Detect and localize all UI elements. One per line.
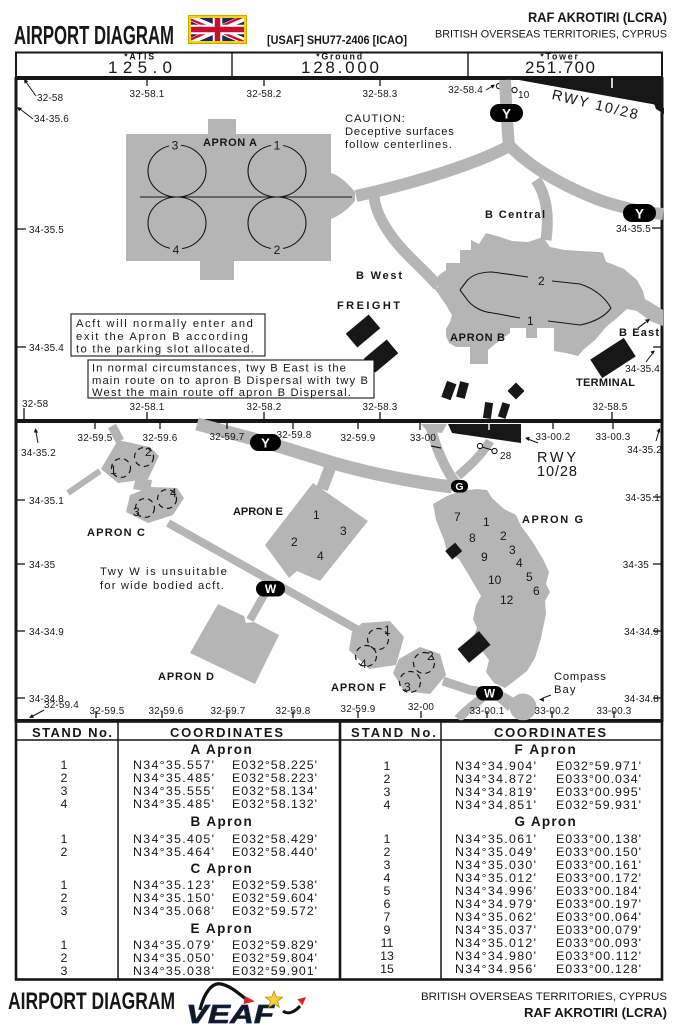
svg-text:N34°35.464': N34°35.464' — [133, 845, 214, 859]
svg-text:TERMINAL: TERMINAL — [576, 377, 635, 389]
svg-text:6: 6 — [384, 897, 391, 911]
svg-text:Y: Y — [635, 207, 644, 222]
svg-text:STAND No.: STAND No. — [32, 725, 112, 740]
svg-text:32-58.4: 32-58.4 — [448, 85, 483, 96]
svg-text:3: 3 — [61, 904, 68, 918]
svg-text:1: 1 — [110, 463, 117, 477]
svg-text:1: 1 — [483, 515, 490, 529]
svg-text:E032°59.931': E032°59.931' — [556, 798, 641, 812]
svg-text:32-00: 32-00 — [408, 702, 435, 713]
svg-text:34-35.1: 34-35.1 — [625, 493, 660, 504]
svg-text:2: 2 — [61, 891, 68, 905]
svg-text:4: 4 — [516, 556, 523, 570]
svg-text:RAF AKROTIRI (LCRA): RAF AKROTIRI (LCRA) — [528, 10, 667, 25]
svg-text:G: G — [455, 481, 463, 493]
svg-text:N34°34.904': N34°34.904' — [455, 759, 536, 773]
svg-text:N34°35.068': N34°35.068' — [133, 904, 214, 918]
svg-text:N34°35.030': N34°35.030' — [455, 858, 536, 872]
svg-text:32-59.8: 32-59.8 — [276, 706, 311, 717]
svg-text:E032°58.225': E032°58.225' — [232, 758, 317, 772]
svg-text:1: 1 — [61, 878, 68, 892]
svg-text:E032°59.829': E032°59.829' — [232, 938, 317, 952]
svg-text:33-00.2: 33-00.2 — [536, 432, 571, 443]
svg-text:N34°35.405': N34°35.405' — [133, 832, 214, 846]
svg-text:3: 3 — [509, 543, 516, 557]
svg-text:Bay: Bay — [554, 684, 577, 696]
svg-text:E Apron: E Apron — [191, 921, 254, 936]
svg-text:[USAF] SHU77-2406 [ICAO]: [USAF] SHU77-2406 [ICAO] — [267, 35, 407, 47]
svg-text:N34°35.123': N34°35.123' — [133, 878, 214, 892]
svg-text:N34°35.557': N34°35.557' — [133, 758, 214, 772]
svg-text:main route on to apron B Dispe: main route on to apron B Dispersal with … — [92, 375, 369, 387]
svg-text:N34°34.980': N34°34.980' — [455, 949, 536, 963]
svg-text:34-34.9: 34-34.9 — [29, 627, 64, 638]
svg-text:E032°58.132': E032°58.132' — [232, 797, 317, 811]
svg-text:4: 4 — [384, 798, 391, 812]
svg-text:APRON C: APRON C — [87, 527, 145, 539]
svg-text:STAND No.: STAND No. — [351, 725, 436, 740]
svg-text:8: 8 — [469, 531, 476, 545]
svg-text:N34°35.012': N34°35.012' — [455, 871, 536, 885]
svg-text:N34°35.150': N34°35.150' — [133, 891, 214, 905]
svg-text:34-35.1: 34-35.1 — [29, 496, 64, 507]
svg-text:33-00.1: 33-00.1 — [470, 706, 505, 717]
svg-text:APRON G: APRON G — [522, 514, 583, 526]
svg-text:W: W — [265, 582, 277, 596]
svg-text:3: 3 — [384, 858, 391, 872]
svg-text:1: 1 — [384, 832, 391, 846]
svg-text:2: 2 — [274, 243, 281, 257]
svg-text:E032°59.804': E032°59.804' — [232, 951, 317, 965]
svg-text:2: 2 — [384, 772, 391, 786]
svg-text:10: 10 — [488, 573, 502, 587]
svg-text:32-59.7: 32-59.7 — [211, 706, 246, 717]
svg-text:1: 1 — [61, 758, 68, 772]
svg-text:AIRPORT DIAGRAM: AIRPORT DIAGRAM — [14, 20, 174, 50]
svg-text:7: 7 — [384, 910, 391, 924]
svg-text:A Apron: A Apron — [191, 742, 254, 757]
svg-text:4: 4 — [173, 243, 180, 257]
svg-text:N34°35.555': N34°35.555' — [133, 784, 214, 798]
svg-text:CAUTION:: CAUTION: — [345, 113, 406, 125]
svg-text:34-35: 34-35 — [623, 560, 650, 571]
svg-text:G Apron: G Apron — [515, 814, 578, 829]
svg-text:32-59.8: 32-59.8 — [277, 430, 312, 441]
svg-text:BRITISH OVERSEAS TERRITORIES,: BRITISH OVERSEAS TERRITORIES, CYPRUS — [421, 991, 667, 1003]
svg-text:C Apron: C Apron — [191, 861, 254, 876]
svg-text:E032°59.901': E032°59.901' — [232, 964, 317, 978]
svg-text:10/28: 10/28 — [537, 464, 577, 480]
svg-text:E033°00.184': E033°00.184' — [556, 884, 641, 898]
svg-text:COORDINATES: COORDINATES — [170, 725, 283, 740]
svg-text:B West: B West — [356, 270, 402, 282]
svg-text:2: 2 — [61, 951, 68, 965]
svg-text:E033°00.079': E033°00.079' — [556, 923, 641, 937]
svg-text:W: W — [484, 689, 495, 701]
svg-text:B Apron: B Apron — [191, 814, 254, 829]
svg-text:32-58.3: 32-58.3 — [363, 402, 398, 413]
svg-text:BRITISH OVERSEAS TERRITORIES,: BRITISH OVERSEAS TERRITORIES, CYPRUS — [435, 29, 667, 41]
svg-text:F Apron: F Apron — [515, 742, 578, 757]
svg-text:34-35.4: 34-35.4 — [29, 343, 64, 354]
svg-text:33-00.3: 33-00.3 — [597, 706, 632, 717]
svg-text:APRON F: APRON F — [331, 682, 386, 694]
svg-text:1: 1 — [527, 314, 534, 328]
svg-text:33-00.3: 33-00.3 — [596, 432, 631, 443]
svg-text:Y: Y — [261, 436, 270, 451]
svg-text:34-35.2: 34-35.2 — [627, 445, 662, 456]
svg-text:32-59.9: 32-59.9 — [341, 704, 376, 715]
svg-text:4: 4 — [170, 486, 177, 500]
svg-text:Deceptive surfaces: Deceptive surfaces — [345, 126, 455, 138]
svg-text:7: 7 — [454, 510, 461, 524]
svg-text:N34°35.050': N34°35.050' — [133, 951, 214, 965]
svg-text:3: 3 — [61, 964, 68, 978]
svg-text:4: 4 — [360, 657, 367, 671]
svg-text:to the parking slot allocated.: to the parking slot allocated. — [76, 344, 255, 356]
svg-text:E033°00.138': E033°00.138' — [556, 832, 641, 846]
svg-text:3: 3 — [133, 505, 140, 519]
svg-text:2: 2 — [538, 274, 545, 288]
svg-text:AIRPORT DIAGRAM: AIRPORT DIAGRAM — [8, 988, 175, 1015]
svg-text:13: 13 — [380, 949, 394, 963]
svg-text:10: 10 — [518, 90, 530, 101]
svg-text:33-00: 33-00 — [410, 433, 437, 444]
svg-text:B Central: B Central — [485, 209, 545, 221]
svg-text:Acft will normally enter and: Acft will normally enter and — [76, 318, 254, 330]
svg-text:1: 1 — [384, 623, 391, 637]
svg-text:33-00.2: 33-00.2 — [535, 706, 570, 717]
svg-text:34-35.5: 34-35.5 — [616, 224, 651, 235]
svg-text:4: 4 — [61, 797, 68, 811]
svg-text:32-59.4: 32-59.4 — [44, 700, 79, 711]
svg-text:32-59.6: 32-59.6 — [149, 706, 184, 717]
svg-text:E033°00.150': E033°00.150' — [556, 845, 641, 859]
svg-text:32-59.6: 32-59.6 — [143, 433, 178, 444]
svg-text:follow centerlines.: follow centerlines. — [345, 139, 453, 151]
svg-text:2: 2 — [291, 535, 298, 549]
svg-text:32-58: 32-58 — [37, 93, 64, 104]
svg-text:2: 2 — [500, 529, 507, 543]
svg-text:E033°00.197': E033°00.197' — [556, 897, 641, 911]
svg-text:Y: Y — [502, 107, 511, 122]
svg-text:West the main route off apron: West the main route off apron B Dispersa… — [92, 387, 352, 399]
svg-text:N34°34.956': N34°34.956' — [455, 962, 536, 976]
svg-text:N34°35.079': N34°35.079' — [133, 938, 214, 952]
svg-text:N34°34.872': N34°34.872' — [455, 772, 536, 786]
svg-text:15: 15 — [380, 962, 394, 976]
svg-text:32-58.1: 32-58.1 — [130, 402, 165, 413]
svg-text:VEAF: VEAF — [186, 999, 275, 1029]
svg-text:34-34.9: 34-34.9 — [624, 627, 659, 638]
svg-text:E032°59.538': E032°59.538' — [232, 878, 317, 892]
svg-text:FREIGHT: FREIGHT — [337, 300, 400, 312]
svg-text:32-59.7: 32-59.7 — [210, 432, 245, 443]
svg-text:4: 4 — [384, 871, 391, 885]
svg-text:COORDINATES: COORDINATES — [494, 725, 606, 740]
svg-text:Compass: Compass — [554, 671, 607, 683]
svg-text:E032°58.440': E032°58.440' — [232, 845, 317, 859]
svg-text:E032°59.971': E032°59.971' — [556, 759, 641, 773]
svg-text:11: 11 — [381, 936, 394, 950]
svg-text:4: 4 — [317, 549, 324, 563]
svg-text:N34°34.851': N34°34.851' — [455, 798, 536, 812]
svg-text:32-59.5: 32-59.5 — [78, 433, 113, 444]
svg-text:E032°58.134': E032°58.134' — [232, 784, 317, 798]
svg-text:2: 2 — [61, 771, 68, 785]
svg-text:34-35.6: 34-35.6 — [34, 114, 69, 125]
svg-text:32-58.2: 32-58.2 — [247, 89, 282, 100]
svg-text:32-59.5: 32-59.5 — [90, 706, 125, 717]
svg-text:32-58.5: 32-58.5 — [593, 402, 628, 413]
svg-text:N34°34.819': N34°34.819' — [455, 785, 536, 799]
svg-text:E033°00.172': E033°00.172' — [556, 871, 641, 885]
svg-text:2: 2 — [427, 649, 434, 663]
svg-text:for wide bodied acft.: for wide bodied acft. — [100, 580, 225, 592]
svg-text:9: 9 — [384, 923, 391, 937]
svg-text:E033°00.093': E033°00.093' — [556, 936, 641, 950]
svg-text:E032°58.223': E032°58.223' — [232, 771, 317, 785]
svg-text:N34°35.012': N34°35.012' — [455, 936, 536, 950]
svg-text:5: 5 — [526, 570, 533, 584]
svg-text:N34°34.996': N34°34.996' — [455, 884, 536, 898]
svg-text:34-35: 34-35 — [29, 560, 56, 571]
svg-text:32-58.1: 32-58.1 — [130, 89, 165, 100]
svg-text:N34°35.049': N34°35.049' — [455, 845, 536, 859]
svg-text:12: 12 — [500, 593, 514, 607]
svg-text:3: 3 — [340, 524, 347, 538]
svg-text:E033°00.112': E033°00.112' — [556, 949, 641, 963]
svg-text:E032°59.572': E032°59.572' — [232, 904, 317, 918]
svg-text:N34°35.485': N34°35.485' — [133, 797, 214, 811]
svg-text:E032°59.604': E032°59.604' — [232, 891, 317, 905]
svg-text:1: 1 — [274, 139, 281, 153]
svg-text:N34°35.062': N34°35.062' — [455, 910, 536, 924]
svg-text:3: 3 — [404, 680, 411, 694]
svg-text:In normal circumstances, twy B: In normal circumstances, twy B East is t… — [92, 363, 347, 375]
svg-text:1: 1 — [313, 508, 320, 522]
svg-text:1: 1 — [61, 832, 68, 846]
svg-text:B East: B East — [619, 327, 659, 339]
svg-text:1: 1 — [61, 938, 68, 952]
svg-text:2: 2 — [61, 845, 68, 859]
svg-text:N34°35.037': N34°35.037' — [455, 923, 536, 937]
svg-text:E032°58.429': E032°58.429' — [232, 832, 317, 846]
svg-text:5: 5 — [384, 884, 391, 898]
svg-text:RAF AKROTIRI (LCRA): RAF AKROTIRI (LCRA) — [524, 1005, 667, 1020]
svg-text:E033°00.995': E033°00.995' — [556, 785, 641, 799]
svg-text:N34°35.038': N34°35.038' — [133, 964, 214, 978]
svg-text:32-59.9: 32-59.9 — [341, 433, 376, 444]
svg-text:9: 9 — [481, 550, 488, 564]
svg-text:N34°35.485': N34°35.485' — [133, 771, 214, 785]
svg-text:34-34.8: 34-34.8 — [624, 694, 659, 705]
svg-text:32-58.2: 32-58.2 — [247, 402, 282, 413]
svg-text:exit the Apron B according: exit the Apron B according — [76, 331, 249, 343]
svg-text:34-35.2: 34-35.2 — [21, 448, 56, 459]
svg-text:E033°00.064': E033°00.064' — [556, 910, 641, 924]
svg-text:6: 6 — [533, 584, 540, 598]
svg-text:E033°00.034': E033°00.034' — [556, 772, 641, 786]
svg-text:1: 1 — [384, 759, 391, 773]
svg-text:2: 2 — [145, 445, 152, 459]
svg-text:N34°35.061': N34°35.061' — [455, 832, 536, 846]
svg-text:APRON A: APRON A — [203, 137, 257, 149]
svg-text:APRON B: APRON B — [450, 332, 505, 344]
svg-text:32-58: 32-58 — [22, 399, 49, 410]
svg-text:34-35.4: 34-35.4 — [625, 364, 660, 375]
svg-text:Twy W is unsuitable: Twy W is unsuitable — [100, 566, 228, 578]
svg-text:34-35.5: 34-35.5 — [29, 225, 64, 236]
svg-text:3: 3 — [61, 784, 68, 798]
svg-text:APRON E: APRON E — [233, 506, 283, 518]
svg-text:APRON D: APRON D — [158, 671, 214, 683]
svg-text:3: 3 — [172, 139, 179, 153]
svg-text:3: 3 — [384, 785, 391, 799]
svg-text:N34°34.979': N34°34.979' — [455, 897, 536, 911]
svg-text:E033°00.128': E033°00.128' — [556, 962, 641, 976]
svg-text:E033°00.161': E033°00.161' — [556, 858, 641, 872]
svg-text:28: 28 — [500, 451, 512, 462]
svg-text:2: 2 — [384, 845, 391, 859]
svg-text:32-58.3: 32-58.3 — [363, 89, 398, 100]
